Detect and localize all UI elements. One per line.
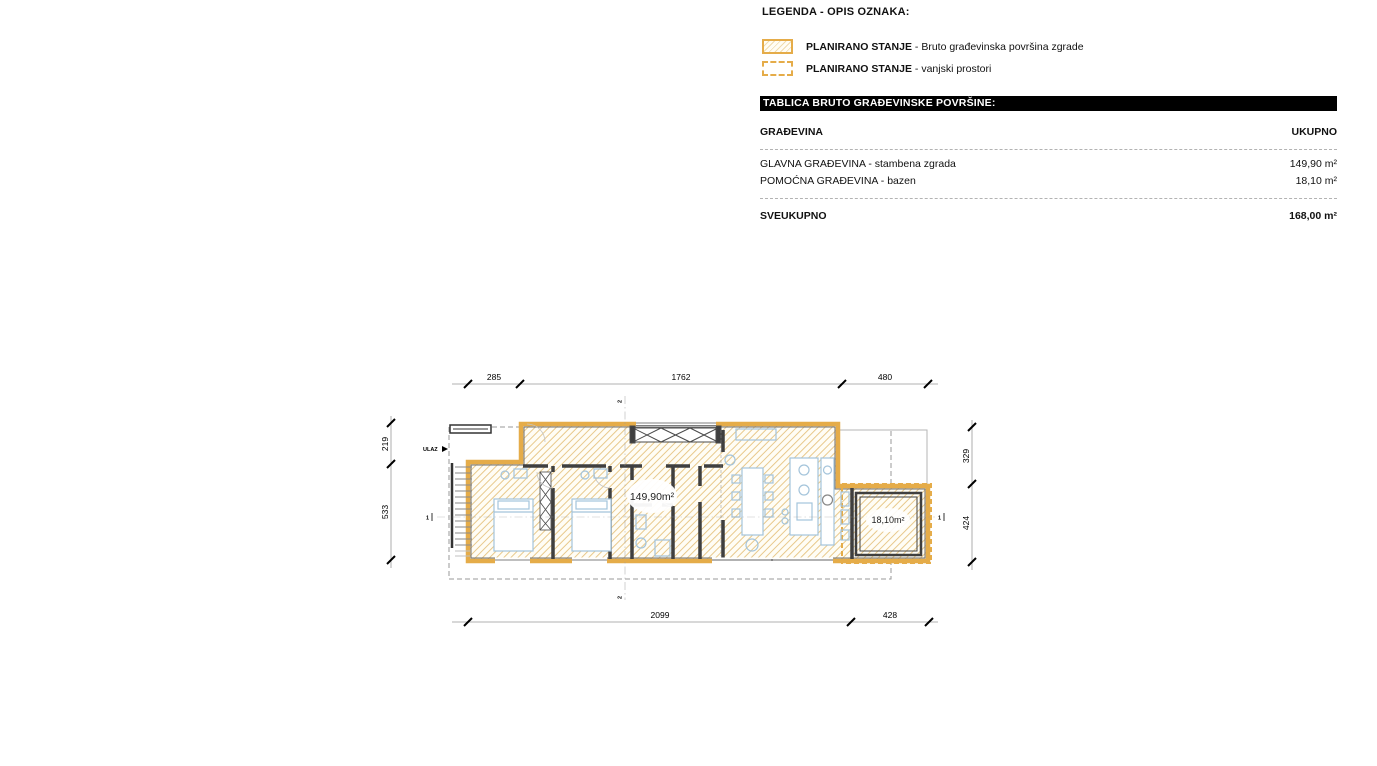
planned-state-dashed-swatch: [762, 61, 793, 76]
total-value: 168,00 m²: [1289, 208, 1337, 225]
dim-label: 424: [961, 516, 971, 530]
dim-label: 533: [380, 505, 390, 519]
table-total-row: SVEUKUPNO 168,00 m²: [760, 208, 1337, 225]
dim-label: 285: [487, 372, 501, 382]
section-mark-2-bottom: 2: [618, 596, 624, 599]
legend-item-name: PLANIRANO STANJE: [806, 41, 912, 53]
floor-plan-drawing: 2 2 1 1 ULAZ 149,90m² 18,10m² 285 1762 4…: [380, 360, 1000, 640]
areas-table: TABLICA BRUTO GRAĐEVINSKE POVRŠINE: GRAĐ…: [760, 96, 1337, 225]
entrance-canopy: [450, 425, 491, 433]
row-label: GLAVNA GRAĐEVINA - stambena zgrada: [760, 156, 956, 173]
row-label: POMOĆNA GRAĐEVINA - bazen: [760, 173, 916, 190]
main-area-label: 149,90m²: [630, 491, 675, 503]
entrance: ULAZ: [423, 446, 448, 453]
total-label: SVEUKUPNO: [760, 208, 827, 225]
dim-label: 428: [883, 610, 897, 620]
dim-label: 2099: [651, 610, 670, 620]
entrance-label: ULAZ: [423, 447, 438, 453]
pool-area-label: 18,10m²: [871, 515, 904, 525]
dimension-bottom: 2099 428: [452, 610, 938, 626]
planned-state-hatch-swatch: [762, 39, 793, 54]
table-separator: [760, 149, 1337, 150]
row-value: 149,90 m²: [1290, 156, 1337, 173]
legend: LEGENDA - OPIS OZNAKA: PLANIRANO STANJE …: [762, 6, 1337, 76]
floor-plan: 2 2 1 1 ULAZ 149,90m² 18,10m² 285 1762 4…: [380, 360, 1000, 640]
row-value: 18,10 m²: [1296, 173, 1337, 190]
dimension-right: 329 424: [961, 420, 976, 570]
legend-item-planned-outdoor: PLANIRANO STANJE - vanjski prostori: [762, 61, 1337, 76]
table-column-headers: GRAĐEVINA UKUPNO: [760, 124, 1337, 141]
legend-item-desc: - vanjski prostori: [912, 63, 991, 75]
table-header-bar: TABLICA BRUTO GRAĐEVINSKE POVRŠINE:: [760, 96, 1337, 111]
bedroom-wardrobe: [540, 472, 551, 530]
terrace-outline: [838, 430, 927, 484]
table-separator: [760, 198, 1337, 199]
dimension-top: 285 1762 480: [452, 372, 938, 388]
col-gradjevina: GRAĐEVINA: [760, 124, 823, 141]
legend-item-planned-building: PLANIRANO STANJE - Bruto građevinska pov…: [762, 39, 1337, 54]
dim-label: 219: [380, 437, 390, 451]
dimension-left: 219 533: [380, 416, 395, 568]
legend-item-desc: - Bruto građevinska površina zgrade: [912, 41, 1084, 53]
dim-label: 329: [961, 449, 971, 463]
section-mark-1-right: 1: [938, 516, 941, 522]
legend-title: LEGENDA - OPIS OZNAKA:: [762, 6, 1337, 18]
entrance-arrow-icon: [442, 446, 448, 452]
col-ukupno: UKUPNO: [1291, 124, 1337, 141]
dim-label: 480: [878, 372, 892, 382]
hall-wardrobe: [630, 426, 721, 443]
table-row: GLAVNA GRAĐEVINA - stambena zgrada 149,9…: [760, 156, 1337, 173]
table-row: POMOĆNA GRAĐEVINA - bazen 18,10 m²: [760, 173, 1337, 190]
legend-item-name: PLANIRANO STANJE: [806, 63, 912, 75]
section-mark-1-left: 1: [426, 516, 429, 522]
section-mark-2-top: 2: [618, 400, 624, 403]
dim-label: 1762: [672, 372, 691, 382]
